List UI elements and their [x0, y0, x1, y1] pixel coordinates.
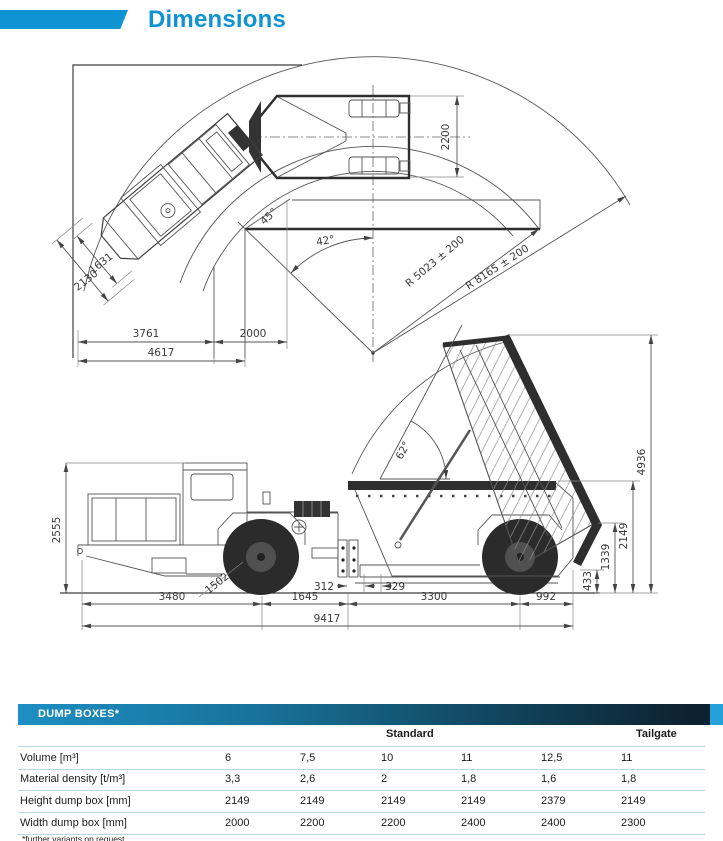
- dim-3480: 3480: [159, 591, 186, 603]
- table-cell: 2149: [381, 790, 405, 812]
- dim-992: 992: [536, 591, 556, 603]
- table-cell: 2: [381, 768, 387, 790]
- dim-1339: 1339: [600, 544, 612, 571]
- table-cell: 1,8: [621, 768, 636, 790]
- rear-wheel-top: [349, 100, 399, 117]
- dump-box-raised: [352, 336, 597, 566]
- table-cell: 11: [621, 747, 632, 769]
- row-label: Height dump box [mm]: [20, 790, 131, 812]
- table-cell: 2400: [461, 812, 485, 834]
- table-cell: 1,8: [461, 768, 476, 790]
- table-row-width-dump-box: Width dump box [mm] 2000 2200 2200 2400 …: [18, 812, 705, 835]
- dim-4936: 4936: [636, 448, 648, 475]
- radius-inner-label: R 5023 ± 200: [403, 234, 467, 290]
- table-row-height-dump-box: Height dump box [mm] 2149 2149 2149 2149…: [18, 790, 705, 813]
- dim-2555: 2555: [51, 517, 63, 544]
- dim-2149: 2149: [618, 523, 630, 550]
- table-cell: 2149: [300, 790, 324, 812]
- table-cell: 2149: [621, 790, 645, 812]
- row-label: Volume [m³]: [20, 747, 79, 769]
- table-cell: 2149: [461, 790, 485, 812]
- exhaust-stack: [263, 492, 270, 504]
- table-cell: 2,6: [300, 768, 315, 790]
- table-title: DUMP BOXES*: [38, 708, 119, 720]
- table-cell: 6: [225, 747, 231, 769]
- row-label: Width dump box [mm]: [20, 812, 127, 834]
- dim-433: 433: [582, 571, 594, 591]
- radius-outer-label: R 8165 ± 200: [464, 243, 532, 293]
- table-cell: 11: [461, 747, 472, 769]
- cab-outline: [121, 165, 201, 246]
- angle-62-label: 62°: [394, 440, 413, 462]
- table-group-header-row: Standard Tailgate: [18, 728, 723, 745]
- table-cell: 12,5: [541, 747, 562, 769]
- table-header-bar-cap: [710, 704, 723, 725]
- dim-9417: 9417: [314, 613, 341, 625]
- dim-2200: 2200: [440, 124, 452, 151]
- table-cell: 2400: [541, 812, 565, 834]
- dim-2000: 2000: [240, 328, 267, 340]
- truck-rear-side-view: [348, 325, 597, 595]
- dim-3300: 3300: [421, 591, 448, 603]
- inner-radius-arc: [180, 146, 539, 283]
- side-view-drawing: 2555 1502 312 329 3480 1645 3300 992 941…: [51, 325, 658, 630]
- table-header-bar: DUMP BOXES*: [18, 704, 723, 725]
- steering-wheel: [158, 201, 178, 221]
- table-cell: 10: [381, 747, 393, 769]
- table-cell: 1,6: [541, 768, 556, 790]
- table-cell: 2379: [541, 790, 565, 812]
- table-cell: 2000: [225, 812, 249, 834]
- top-view-drawing: 3761 2000 4617 2200 45° 42° R 5023 ± 200…: [52, 57, 630, 367]
- hitch-front-wall: [249, 101, 261, 173]
- dim-329: 329: [385, 581, 405, 593]
- table-row-volume: Volume [m³] 6 7,5 10 11 12,5 11: [18, 746, 705, 770]
- dim-3761: 3761: [133, 328, 160, 340]
- angle-45-label: 45°: [258, 206, 280, 227]
- table-footnote: *further variants on request: [22, 834, 125, 841]
- column-group-standard: Standard: [386, 728, 434, 740]
- inner-radius-arc-2: [203, 171, 513, 291]
- row-label: Material density [t/m³]: [20, 768, 125, 790]
- angle-42-label: 42°: [315, 234, 335, 249]
- column-group-tailgate: Tailgate: [636, 728, 677, 740]
- articulation-hitch: [228, 125, 253, 151]
- spec-page: Dimensions: [0, 0, 723, 841]
- table-row-material-density: Material density [t/m³] 3,3 2,6 2 1,8 1,…: [18, 768, 705, 791]
- table-cell: 2200: [381, 812, 405, 834]
- table-cell: 2300: [621, 812, 645, 834]
- cab-window: [191, 474, 233, 500]
- table-cell: 2149: [225, 790, 249, 812]
- dim-1645: 1645: [292, 591, 319, 603]
- dim-4617: 4617: [148, 347, 175, 359]
- front-deck-box: [88, 494, 180, 545]
- table-cell: 3,3: [225, 768, 240, 790]
- table-cell: 7,5: [300, 747, 315, 769]
- table-cell: 2200: [300, 812, 324, 834]
- angle-62-arc: [411, 421, 446, 479]
